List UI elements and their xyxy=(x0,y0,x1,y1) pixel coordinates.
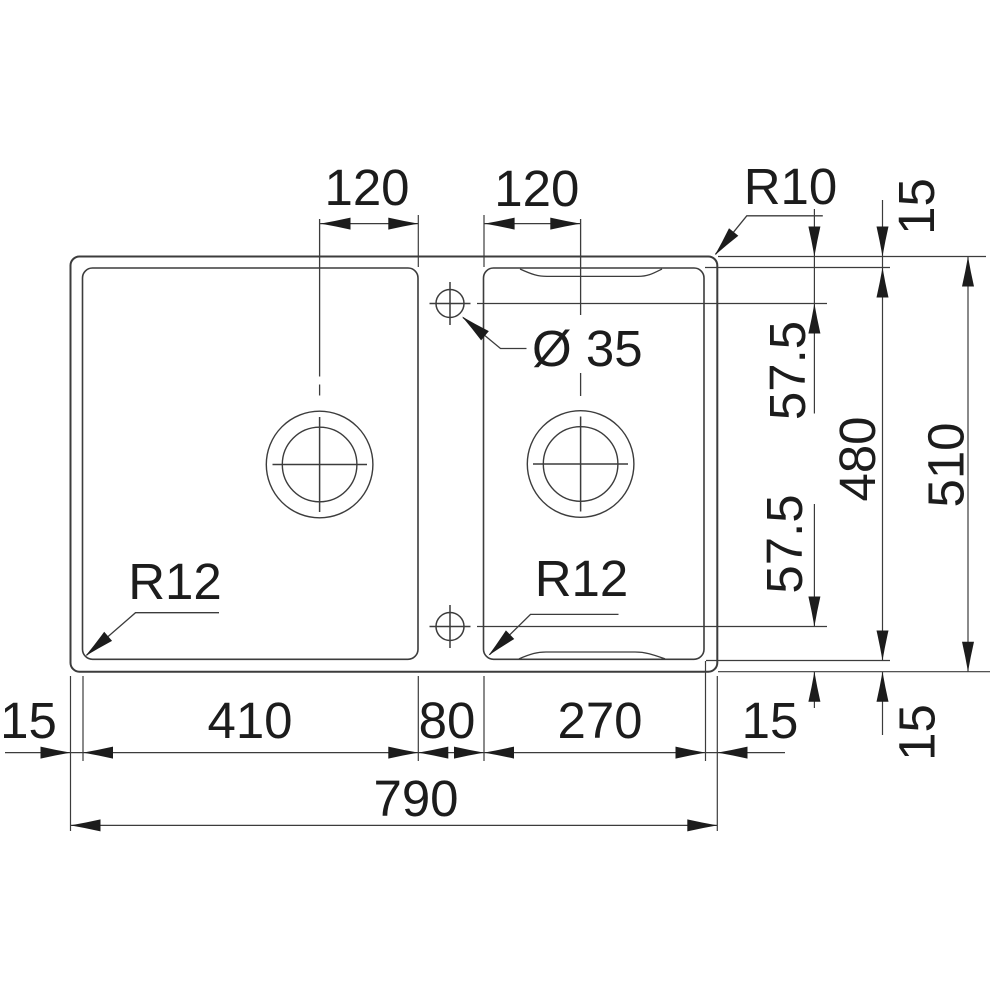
svg-text:15: 15 xyxy=(0,692,57,749)
svg-text:120: 120 xyxy=(494,160,579,217)
svg-text:R12: R12 xyxy=(128,553,222,610)
svg-text:480: 480 xyxy=(829,416,886,501)
svg-text:57.5: 57.5 xyxy=(756,494,813,593)
svg-text:15: 15 xyxy=(888,178,945,235)
svg-text:15: 15 xyxy=(742,692,799,749)
svg-text:120: 120 xyxy=(324,159,409,216)
svg-text:57.5: 57.5 xyxy=(759,321,816,420)
svg-text:Ø 35: Ø 35 xyxy=(532,320,643,377)
svg-text:R12: R12 xyxy=(535,550,629,607)
svg-text:510: 510 xyxy=(918,422,975,507)
svg-text:R10: R10 xyxy=(744,158,838,215)
svg-text:80: 80 xyxy=(419,692,476,749)
svg-text:15: 15 xyxy=(889,704,946,761)
svg-text:790: 790 xyxy=(373,770,458,827)
svg-text:410: 410 xyxy=(207,692,292,749)
svg-text:270: 270 xyxy=(557,692,642,749)
